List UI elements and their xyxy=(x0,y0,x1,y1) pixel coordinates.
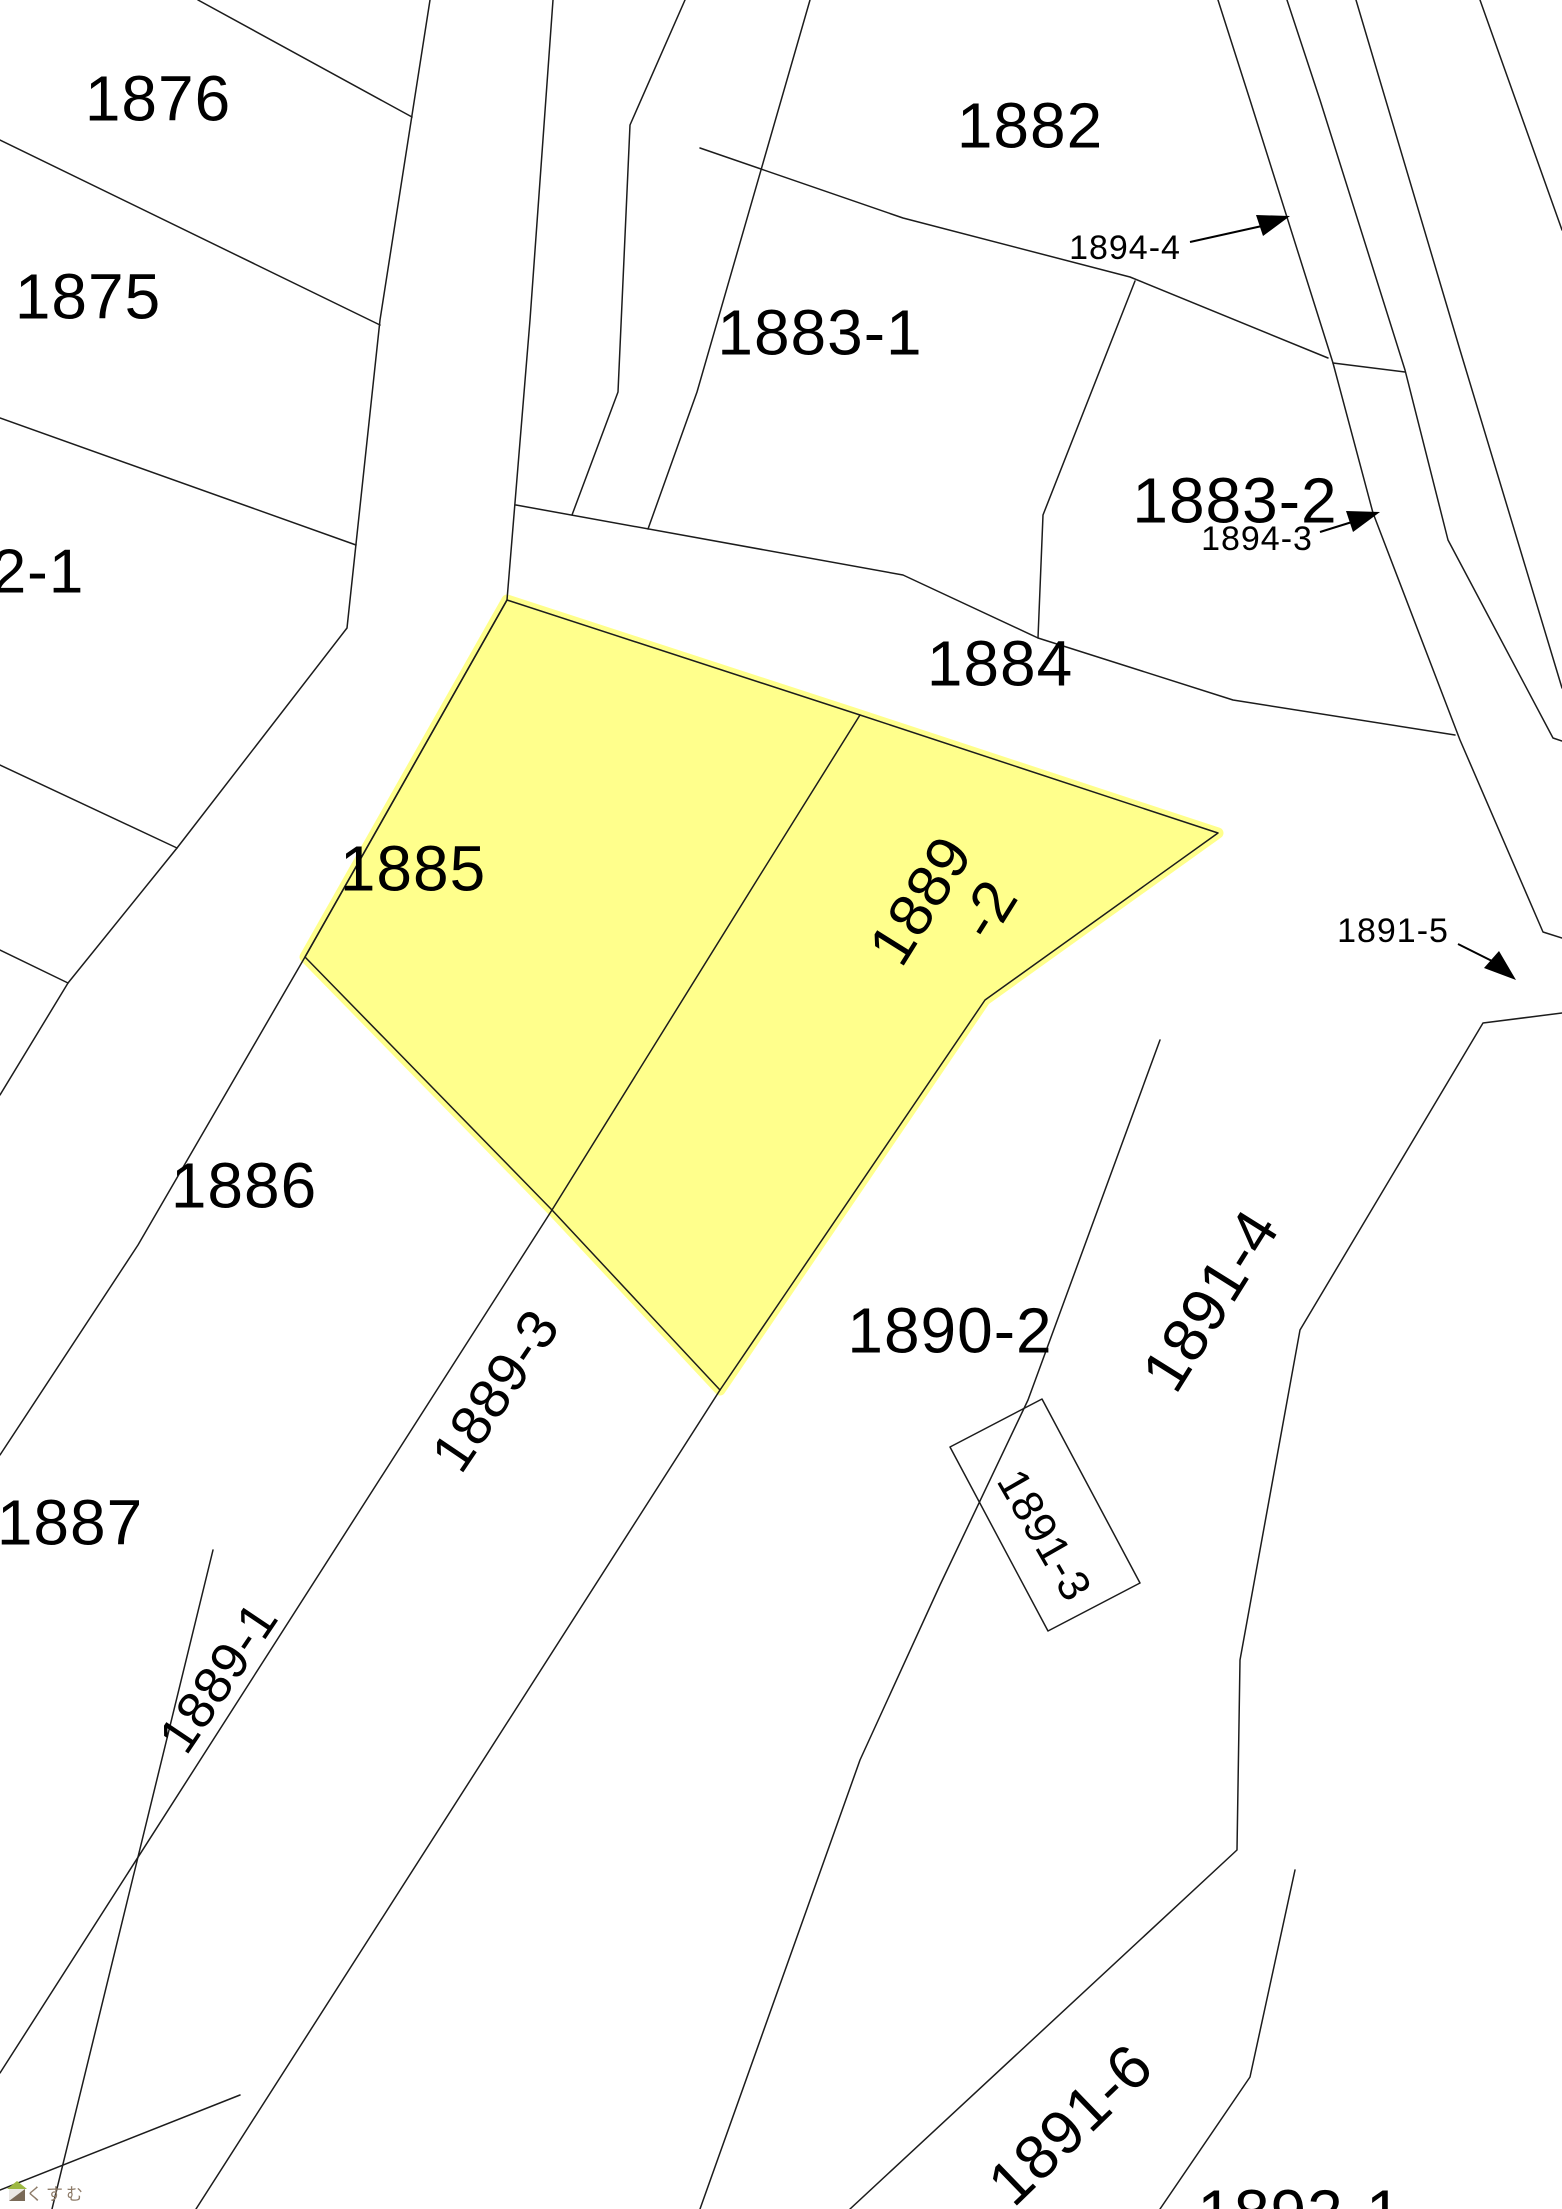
house-icon xyxy=(6,2180,28,2202)
svg-text:1890-2: 1890-2 xyxy=(847,1294,1052,1366)
svg-text:1894-4: 1894-4 xyxy=(1069,229,1181,267)
svg-text:1889-3: 1889-3 xyxy=(419,1298,572,1483)
boundary-ne-road-c xyxy=(1356,0,1562,688)
parcel-label-1889-1: 1889-1 xyxy=(148,1592,290,1764)
svg-text:2-1: 2-1 xyxy=(0,538,84,607)
svg-text:1885: 1885 xyxy=(340,832,486,904)
svg-text:1894-3: 1894-3 xyxy=(1201,520,1313,558)
boundary-1875-2-1 xyxy=(0,418,356,545)
boundary-corridor-west xyxy=(572,0,685,515)
parcel-map-canvas: 187618752-118821883-11883-2188418851889-… xyxy=(0,0,1562,2209)
boundary-strip-connector xyxy=(1333,363,1405,372)
svg-text:1887: 1887 xyxy=(0,1486,143,1558)
svg-text:1891-5: 1891-5 xyxy=(1337,912,1449,950)
boundary-1887-1889-1 xyxy=(52,1550,213,2209)
boundary-1887-division xyxy=(0,950,68,983)
parcel-1885-1889-2-highlight xyxy=(305,600,1218,1390)
svg-text:1891-6: 1891-6 xyxy=(975,2031,1166,2209)
svg-text:1876: 1876 xyxy=(85,62,231,134)
boundary-1883-1-1883-2 xyxy=(1038,281,1135,638)
parcel-label-1876: 1876 xyxy=(85,62,231,134)
site-logo: らくすむ xyxy=(6,2180,86,2205)
svg-text:1892-1: 1892-1 xyxy=(1197,2176,1402,2209)
boundary-1891-6-southeast xyxy=(1160,1870,1295,2209)
svg-text:1886: 1886 xyxy=(171,1149,317,1221)
parcel-label-1890-2: 1890-2 xyxy=(847,1294,1052,1366)
highlighted-parcel-group xyxy=(305,600,1218,1390)
svg-text:1891-4: 1891-4 xyxy=(1129,1198,1293,1403)
boundary-1891-5-south xyxy=(850,1013,1562,2209)
parcel-label-1891-4: 1891-4 xyxy=(1129,1198,1293,1403)
parcel-label-1891-3: 1891-3 xyxy=(987,1461,1101,1609)
parcel-label-1892-1: 1892-1 xyxy=(1197,2176,1402,2209)
svg-text:1882: 1882 xyxy=(957,89,1103,161)
parcel-label-1882: 1882 xyxy=(957,89,1103,161)
svg-text:1891-3: 1891-3 xyxy=(987,1461,1101,1609)
boundary-corridor-east xyxy=(648,0,810,529)
parcel-label-1885: 1885 xyxy=(340,832,486,904)
svg-text:1889-1: 1889-1 xyxy=(148,1592,290,1764)
svg-text:1875: 1875 xyxy=(15,260,161,332)
cadastral-map: 187618752-118821883-11883-2188418851889-… xyxy=(0,0,1562,2209)
arrow-1891-5 xyxy=(1458,944,1516,980)
arrow-1894-4 xyxy=(1190,215,1290,242)
parcel-label-1887: 1887 xyxy=(0,1486,143,1558)
parcel-label-1894-4: 1894-4 xyxy=(1069,229,1181,267)
parcel-label-1891-6: 1891-6 xyxy=(975,2031,1166,2209)
svg-text:1884: 1884 xyxy=(927,627,1073,699)
parcel-label-1891-5: 1891-5 xyxy=(1337,912,1449,950)
parcel-label-1889-3: 1889-3 xyxy=(419,1298,572,1483)
parcel-label-1883-1: 1883-1 xyxy=(717,296,922,368)
boundary-ne-road-d xyxy=(1480,0,1562,230)
boundary-1889-3-1889-1 xyxy=(196,1390,720,2209)
svg-text:1883-1: 1883-1 xyxy=(717,296,922,368)
annotation-arrows xyxy=(1190,215,1516,980)
parcel-label-2-1: 2-1 xyxy=(0,538,84,607)
parcel-label-1875: 1875 xyxy=(15,260,161,332)
boundary-2-1-1887 xyxy=(0,765,177,848)
boundary-1889-1-southwest xyxy=(0,2095,240,2190)
parcel-label-1894-3: 1894-3 xyxy=(1201,520,1313,558)
boundary-ne-road-b xyxy=(1287,0,1562,741)
parcel-label-1886: 1886 xyxy=(171,1149,317,1221)
parcel-label-1884: 1884 xyxy=(927,627,1073,699)
